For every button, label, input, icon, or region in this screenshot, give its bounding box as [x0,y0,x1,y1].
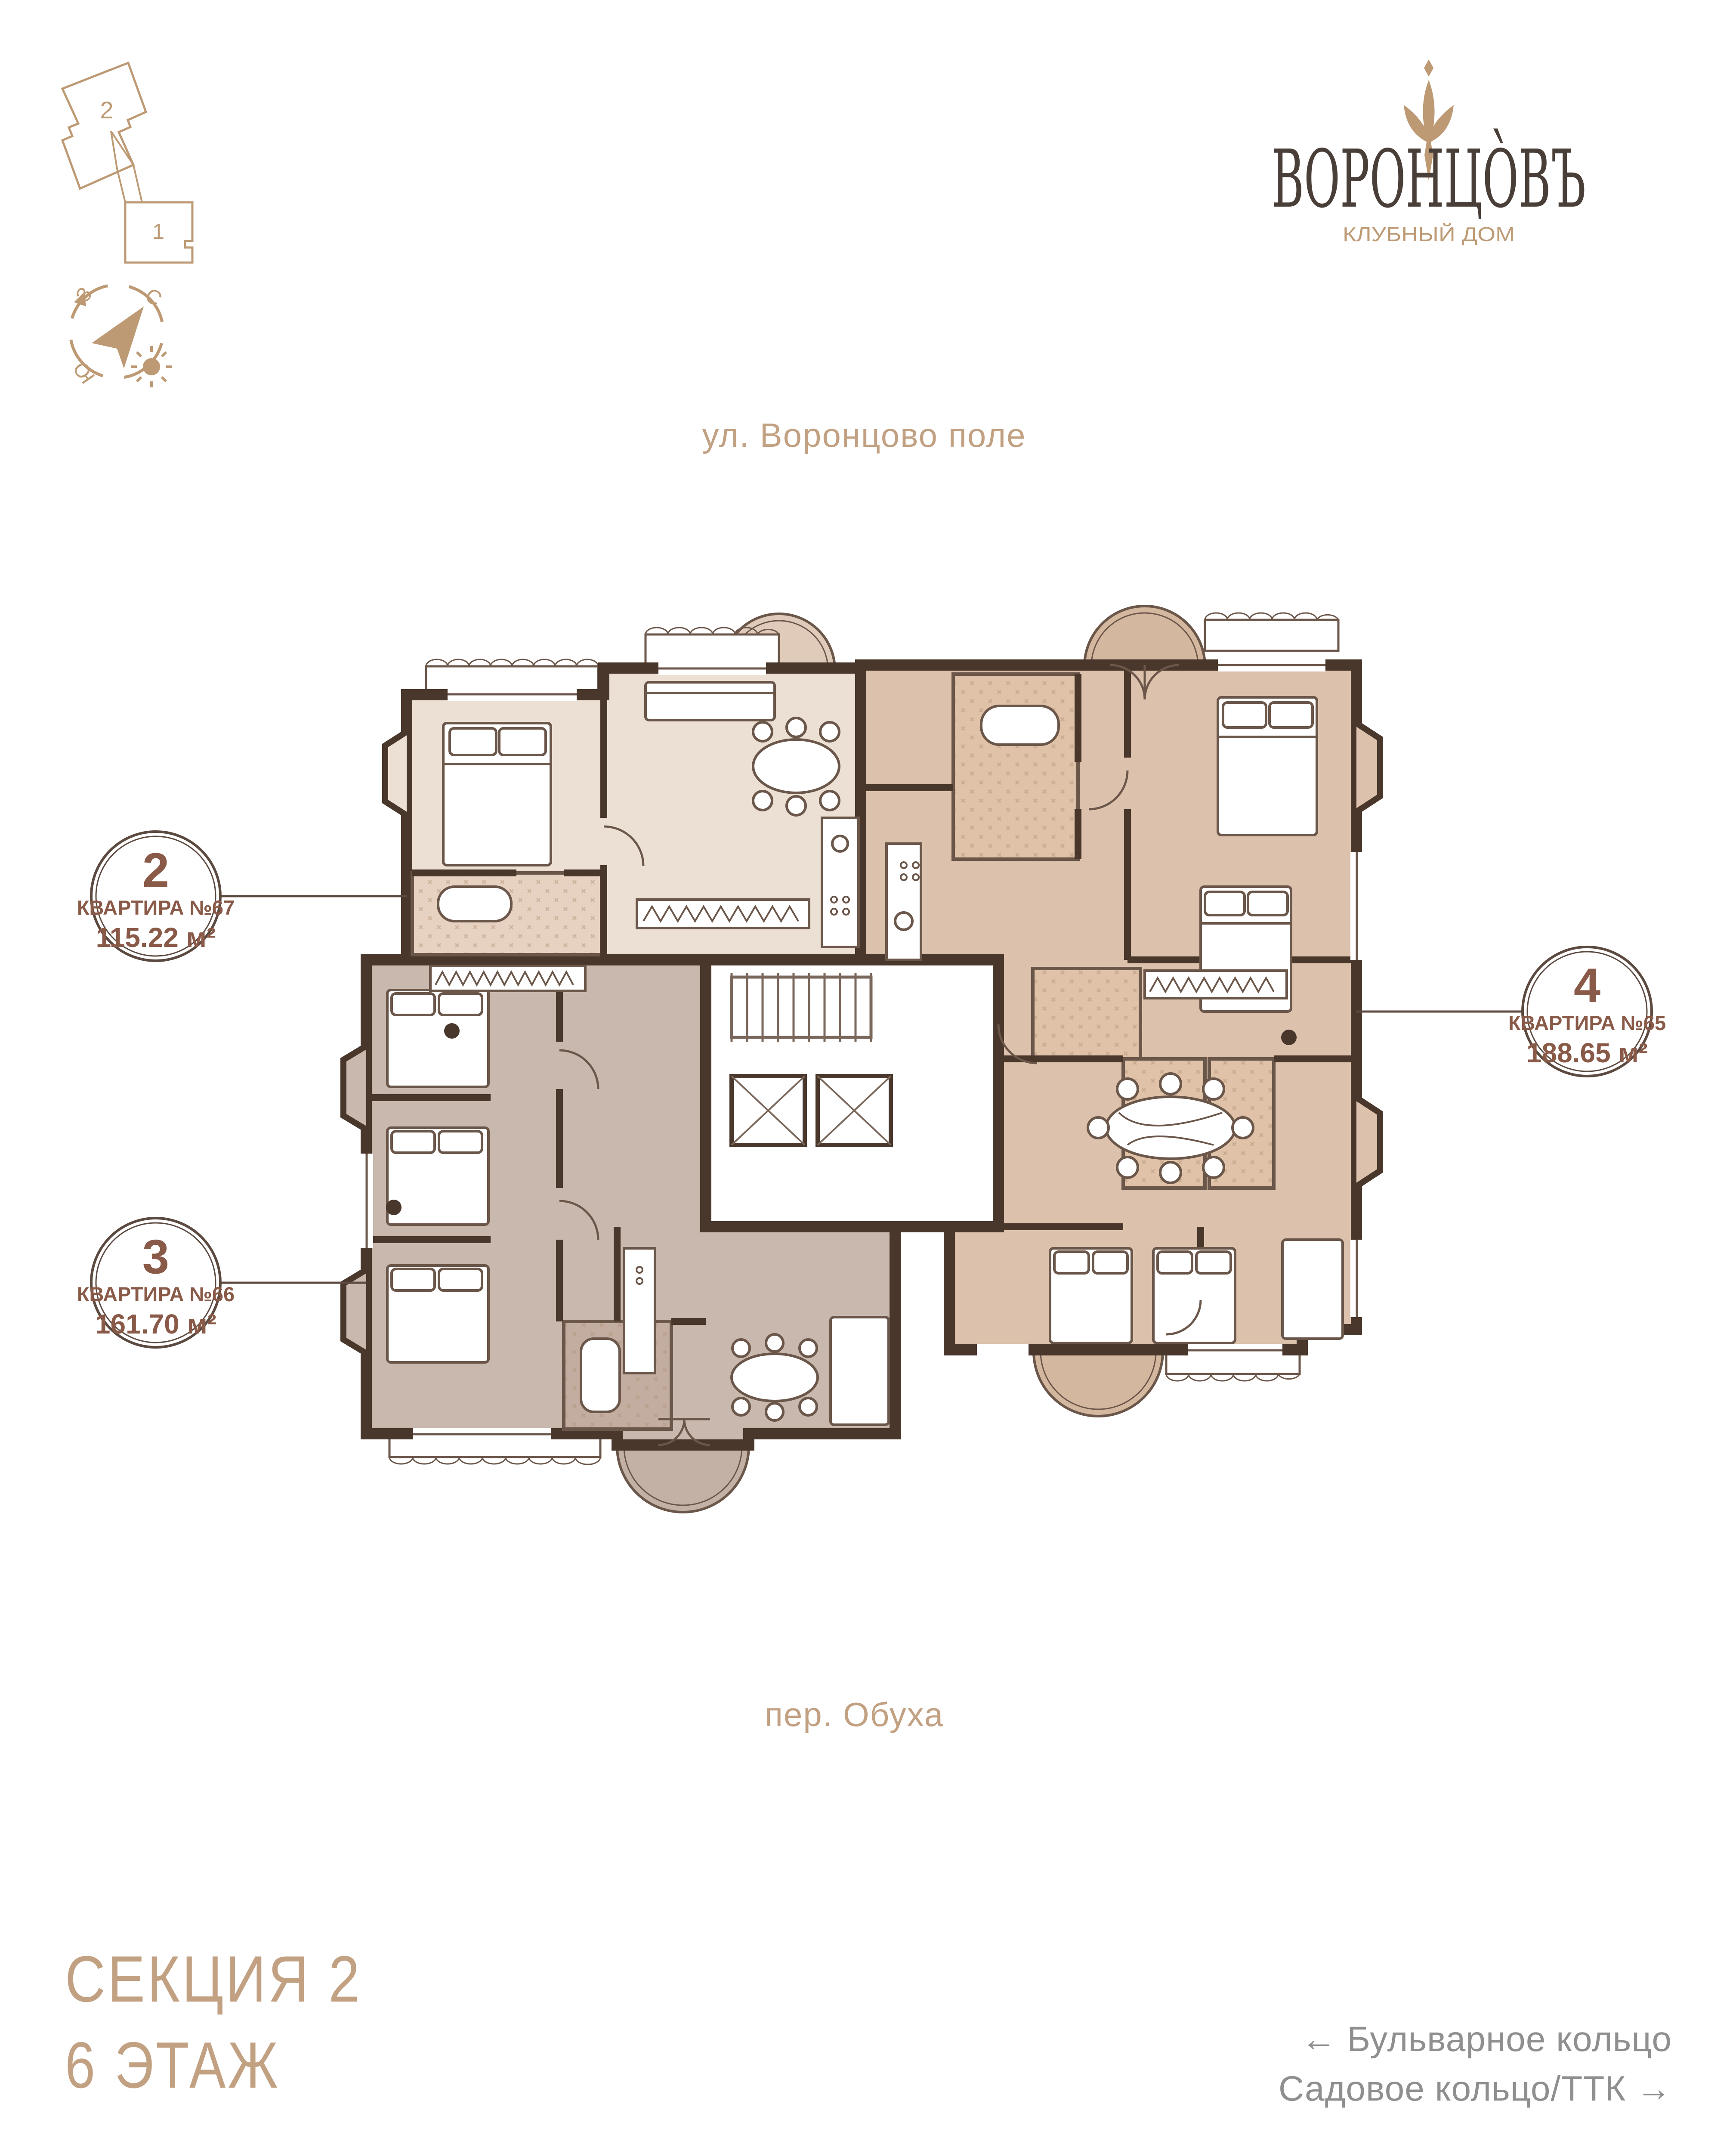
badge-4-title: КВАРТИРА №65 [1508,1012,1666,1034]
logo-subtitle: КЛУБНЫЙ ДОМ [1343,223,1515,245]
bay-window [385,732,407,815]
apartment-badge-4[interactable]: 4 КВАРТИРА №65 188.65 м² [1356,947,1666,1076]
apartment-badge-3[interactable]: 3 КВАРТИРА №66 161.70 м² [77,1218,366,1347]
balcony-rect-top-right [1205,620,1338,651]
bay-window [1356,723,1380,812]
street-label-top: ул. Воронцово поле [702,416,1026,454]
mini-plan-section-2-label: 2 [100,96,113,124]
mini-plan-section-1-label: 1 [152,220,164,244]
compass-south-label: Ю [69,357,99,387]
balcony-dome-bottom-left [617,1446,749,1512]
stair-core [706,960,998,1227]
logo: ВОРОНЦО̀ВЪ КЛУБНЫЙ ДОМ [1272,59,1586,245]
mini-building-plan: 2 1 [62,63,192,263]
sun-icon [131,346,172,387]
footer-direction-left: ← Бульварное кольцо [1301,2020,1672,2059]
footer-floor-label: 6 ЭТАЖ [65,2029,280,2102]
logo-title: ВОРОНЦО̀ВЪ [1272,128,1586,226]
badge-2-number: 2 [142,843,169,897]
badge-3-title: КВАРТИРА №66 [77,1283,235,1306]
badge-3-number: 3 [142,1230,169,1284]
compass-arrow-icon [92,306,144,368]
badge-4-area: 188.65 м² [1526,1037,1648,1068]
footer-section-label: СЕКЦИЯ 2 [65,1943,362,2016]
floorplan-page: 2 1 З С Ю ВОРОНЦО̀ВЪ К [0,0,1736,2138]
balcony-dome-top-right [1084,606,1205,666]
balcony-dome-bottom-right [1034,1352,1163,1416]
badge-2-area: 115.22 м² [96,922,216,953]
footer: СЕКЦИЯ 2 6 ЭТАЖ ← Бульварное кольцо Садо… [65,1943,1672,2108]
badge-4-number: 4 [1574,959,1600,1012]
bay-window [1356,1098,1380,1186]
footer-direction-right: Садовое кольцо/ТТК → [1279,2069,1672,2108]
compass-north-label: С [141,284,166,311]
apartment-badge-2[interactable]: 2 КВАРТИРА №67 115.22 м² [77,832,407,961]
floor-plan [343,606,1380,1512]
mini-plan-section-2-outline [62,63,146,189]
balcony-rect-top-mid [646,634,779,665]
street-label-bottom: пер. Обуха [765,1696,944,1733]
badge-2-title: КВАРТИРА №67 [77,896,235,919]
badge-3-area: 161.70 м² [95,1309,216,1340]
bay-window [343,1046,366,1129]
compass: З С Ю [58,273,175,390]
